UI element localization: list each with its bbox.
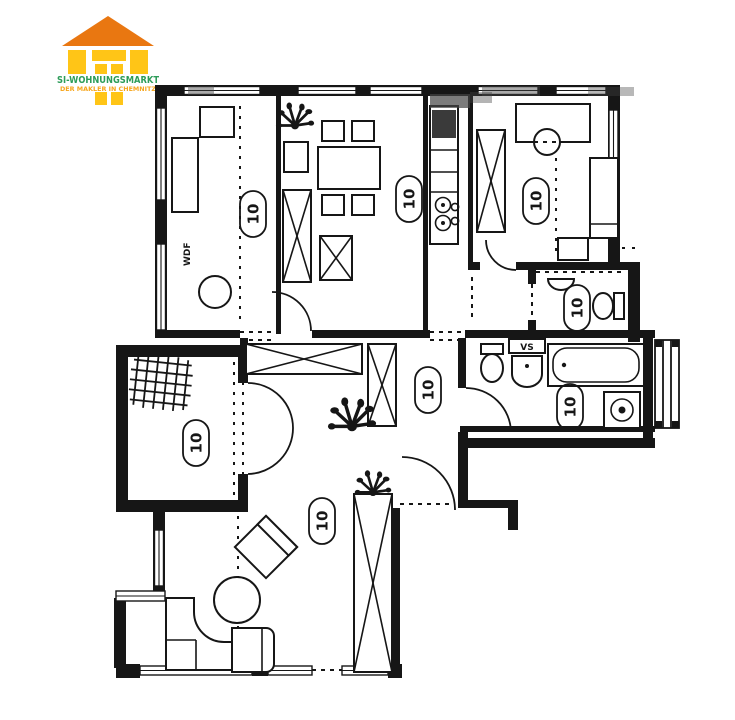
floorplan-page: SI-WOHNUNGSMARKT DER MAKLER IN CHEMNITZ (0, 0, 735, 720)
utility-shaft-box: VS (509, 339, 545, 353)
door-arc-bedroom (486, 240, 516, 270)
room-label: 10 (396, 176, 422, 222)
exterior-shaft (655, 340, 679, 428)
washing-machine-icon (604, 392, 640, 428)
chair (322, 121, 344, 141)
room-label: 10 (309, 498, 335, 544)
window-bottom-2 (268, 666, 312, 675)
wardrobe-icon (354, 494, 392, 672)
door-arc-living (402, 457, 455, 510)
logo-roof-icon (62, 16, 154, 46)
cabinet-icon (320, 236, 352, 280)
room-top-left: WDF (172, 107, 234, 308)
svg-text:10: 10 (188, 433, 206, 454)
small-table (284, 142, 308, 172)
nightstand (558, 238, 588, 260)
room-dining (276, 102, 380, 282)
door-arc-bathroom (466, 388, 511, 432)
wall-note: WDF (183, 242, 193, 266)
sink-icon (512, 356, 542, 387)
plant-icon (355, 470, 392, 496)
chair (352, 121, 374, 141)
svg-text:10: 10 (314, 511, 332, 532)
window-bay (116, 591, 165, 601)
chair (352, 195, 374, 215)
window-top-2 (298, 87, 356, 95)
toilet-icon (481, 344, 503, 382)
window-top-3 (370, 87, 422, 95)
bed (590, 158, 618, 238)
door-arc-loggia-1 (248, 383, 293, 428)
coffee-table (214, 577, 260, 623)
svg-text:10: 10 (401, 189, 419, 210)
room-label: 10 (183, 420, 209, 466)
shaft-note: VS (520, 343, 533, 353)
svg-text:10: 10 (420, 380, 438, 401)
window-left-2 (157, 244, 166, 330)
sink-icon (548, 279, 574, 290)
floor-plan: SI-WOHNUNGSMARKT DER MAKLER IN CHEMNITZ (0, 0, 735, 720)
agency-logo: SI-WOHNUNGSMARKT DER MAKLER IN CHEMNITZ (57, 16, 159, 105)
wardrobe-icon (283, 190, 311, 282)
sofa (232, 628, 274, 672)
fridge-icon (432, 110, 456, 138)
chair (322, 195, 344, 215)
bathtub (548, 344, 644, 386)
room-label: 10 (564, 285, 590, 331)
svg-text:10: 10 (245, 204, 263, 225)
dining-table (318, 147, 380, 189)
loggia (127, 352, 194, 412)
window-living-left (155, 530, 164, 586)
svg-text:10: 10 (562, 397, 580, 418)
armchair (235, 516, 297, 578)
logo-subtitle: DER MAKLER IN CHEMNITZ (60, 87, 156, 93)
plant-icon (276, 102, 314, 129)
bedroom (477, 104, 618, 260)
door-arc-loggia-2 (248, 428, 293, 474)
room-label: 10 (240, 191, 266, 237)
logo-title: SI-WOHNUNGSMARKT (57, 75, 159, 86)
room-label: 10 (557, 384, 583, 430)
side-table (199, 276, 231, 308)
room-label: 10 (523, 178, 549, 224)
svg-text:10: 10 (528, 191, 546, 212)
toilet-icon (593, 293, 624, 319)
window-left-1 (157, 108, 166, 200)
wardrobe-icon (246, 344, 362, 374)
room-label: 10 (415, 367, 441, 413)
kitchen (430, 106, 459, 244)
shelf (200, 107, 234, 137)
wardrobe-icon (477, 130, 505, 232)
desk (172, 138, 198, 212)
planter-hatch (127, 352, 194, 412)
svg-text:10: 10 (569, 298, 587, 319)
round-table (534, 129, 560, 155)
wardrobe-icon (368, 344, 396, 426)
